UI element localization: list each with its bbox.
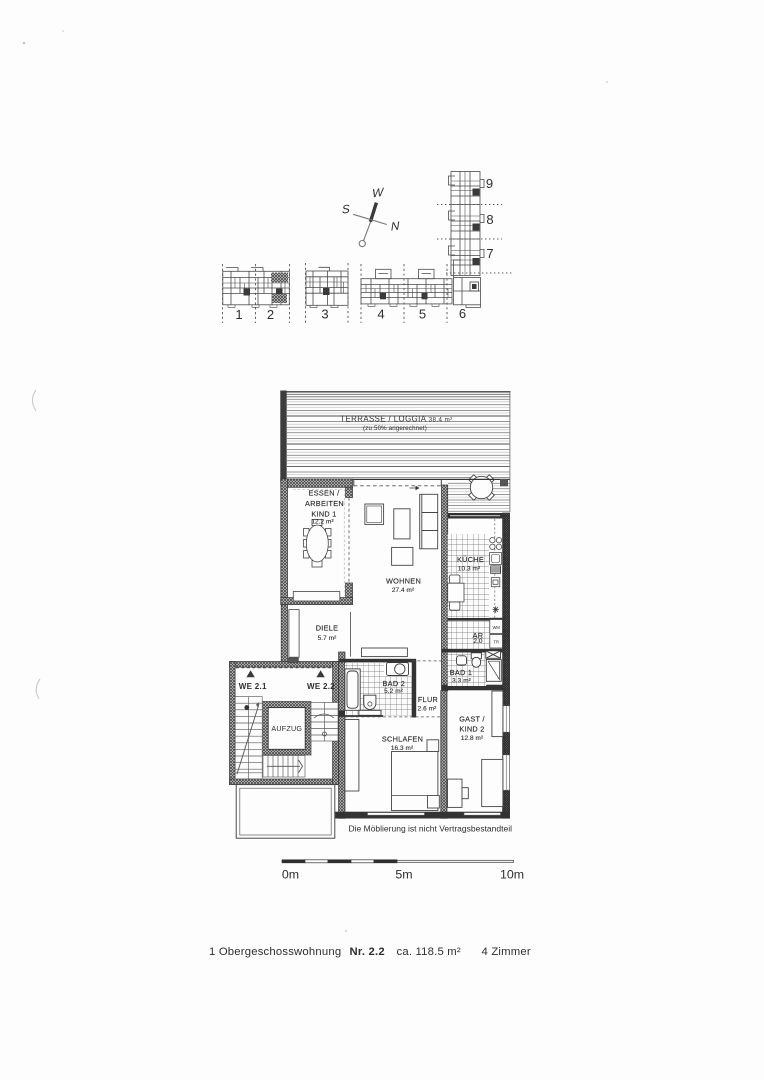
svg-text:KIND 1: KIND 1	[311, 510, 336, 519]
svg-text:3.3 m²: 3.3 m²	[452, 677, 471, 684]
svg-text:118.5 m²: 118.5 m²	[416, 946, 461, 958]
svg-text:6: 6	[459, 306, 466, 321]
svg-text:ARBEITEN: ARBEITEN	[305, 499, 344, 508]
svg-text:10m: 10m	[500, 868, 524, 882]
svg-text:FLUR: FLUR	[418, 695, 438, 704]
svg-text:TR: TR	[493, 640, 499, 645]
svg-text:2.0: 2.0	[473, 638, 483, 645]
svg-text:ca.: ca.	[397, 946, 413, 958]
svg-text:9: 9	[486, 176, 493, 191]
svg-text:5.7 m²: 5.7 m²	[318, 635, 337, 642]
svg-text:1: 1	[235, 307, 242, 322]
svg-text:BAD 1: BAD 1	[450, 668, 473, 677]
svg-text:DIELE: DIELE	[316, 624, 339, 633]
svg-text:4: 4	[377, 307, 384, 322]
svg-text:12.8 m²: 12.8 m²	[461, 735, 483, 742]
svg-text:KÜCHE: KÜCHE	[457, 555, 484, 564]
svg-text:5: 5	[419, 307, 426, 322]
svg-text:27.4 m²: 27.4 m²	[392, 587, 414, 594]
svg-text:Die Möblierung ist nicht Vertr: Die Möblierung ist nicht Vertragsbestand…	[349, 823, 513, 833]
svg-text:GAST /: GAST /	[459, 715, 485, 724]
svg-text:12.2 m²: 12.2 m²	[311, 519, 333, 526]
svg-text:KIND 2: KIND 2	[459, 725, 484, 734]
svg-text:BAD 2: BAD 2	[383, 679, 406, 688]
svg-text:WM: WM	[492, 625, 500, 630]
svg-text:SCHLAFEN: SCHLAFEN	[382, 735, 423, 744]
svg-text:10.3 m²: 10.3 m²	[458, 566, 480, 573]
svg-text:AUFZUG: AUFZUG	[271, 724, 302, 733]
svg-text:4 Zimmer: 4 Zimmer	[482, 946, 531, 958]
svg-text:ESSEN /: ESSEN /	[309, 489, 341, 498]
svg-text:3: 3	[321, 307, 328, 322]
svg-text:WE 2.1: WE 2.1	[239, 682, 267, 691]
svg-text:(zu 50% angerechnet): (zu 50% angerechnet)	[363, 425, 427, 432]
svg-text:WE 2.2: WE 2.2	[307, 682, 335, 691]
svg-text:TERRASSE / LOGGIA 38.4 m²: TERRASSE / LOGGIA 38.4 m²	[340, 414, 452, 423]
svg-text:0m: 0m	[282, 868, 299, 882]
svg-text:8: 8	[486, 212, 493, 227]
svg-text:5m: 5m	[395, 868, 412, 882]
svg-text:N: N	[391, 218, 401, 233]
svg-text:2.6 m²: 2.6 m²	[418, 706, 437, 713]
svg-text:5.2 m²: 5.2 m²	[384, 688, 403, 695]
svg-text:1 Obergeschosswohnung: 1 Obergeschosswohnung	[209, 946, 341, 958]
svg-text:Nr. 2.2: Nr. 2.2	[350, 946, 385, 958]
svg-text:S: S	[342, 202, 351, 217]
svg-text:16.3 m²: 16.3 m²	[391, 745, 413, 752]
svg-text:7: 7	[486, 246, 493, 261]
svg-text:2: 2	[267, 307, 274, 322]
svg-text:WOHNEN: WOHNEN	[386, 577, 421, 586]
